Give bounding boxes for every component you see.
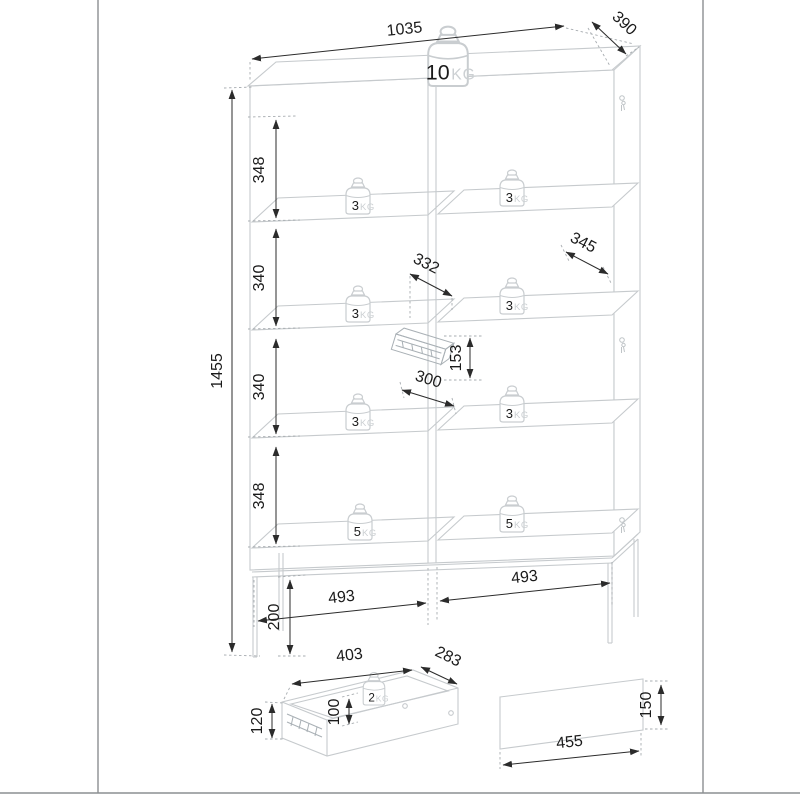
panel-width-label: 455 — [555, 733, 583, 753]
dimension-height-label: 1455 — [209, 353, 226, 389]
section-label: 340 — [251, 374, 268, 401]
kg-unit: KG — [514, 302, 529, 313]
drawer-load: 2 — [368, 691, 375, 704]
kg-unit: KG — [362, 528, 377, 539]
weight-icon: 10 KG — [426, 27, 476, 86]
section-label: 348 — [251, 157, 268, 184]
shelf-load: 5 — [506, 516, 513, 531]
section-label: 340 — [251, 265, 268, 292]
kg-unit: KG — [376, 693, 389, 703]
kg-unit: KG — [360, 202, 375, 213]
technical-drawing-page: 10 KG 3 KG 3 KG 3 KG 5 KG 3 KG — [0, 0, 800, 800]
cabinet-drawing — [248, 46, 640, 657]
kg-unit: KG — [514, 410, 529, 421]
max-load-top: 10 — [426, 60, 450, 84]
dimension-panel-width — [503, 751, 639, 765]
drawer-detail-drawing: 2 KG 403 283 120 100 — [249, 643, 464, 756]
drawer-depth-label: 283 — [432, 643, 464, 670]
section-label: 348 — [251, 483, 268, 510]
drawer-width-label: 403 — [335, 646, 364, 666]
compartment-right-label: 493 — [510, 568, 538, 588]
shelf-load: 3 — [352, 306, 359, 321]
compartment-left-label: 493 — [327, 588, 355, 608]
leg-front-right — [608, 563, 612, 643]
front-panel-detail-drawing: 150 455 — [500, 679, 669, 769]
shelf-load: 3 — [506, 406, 513, 421]
kg-unit: KG — [360, 418, 375, 429]
drawer-height-label: 120 — [249, 708, 266, 735]
shelf-load: 5 — [354, 524, 361, 539]
leg-height-label: 200 — [266, 604, 283, 631]
leg-back-right — [634, 539, 638, 617]
drawer-opening-height-label: 153 — [448, 345, 465, 372]
shelf-load: 3 — [352, 198, 359, 213]
shelf-load: 3 — [352, 414, 359, 429]
panel-height-label: 150 — [638, 692, 655, 719]
shelf-load: 3 — [506, 298, 513, 313]
furniture-dimension-diagram: 10 KG 3 KG 3 KG 3 KG 5 KG 3 KG — [0, 0, 800, 800]
shelf-load: 3 — [506, 190, 513, 205]
kg-unit: KG — [514, 194, 529, 205]
dimension-width-label: 1035 — [386, 19, 423, 40]
drawer-inner-height-label: 100 — [326, 699, 343, 726]
kg-unit: KG — [514, 520, 529, 531]
kg-unit: KG — [360, 310, 375, 321]
kg-unit: KG — [451, 66, 475, 83]
dimension-depth-label: 390 — [609, 8, 640, 39]
